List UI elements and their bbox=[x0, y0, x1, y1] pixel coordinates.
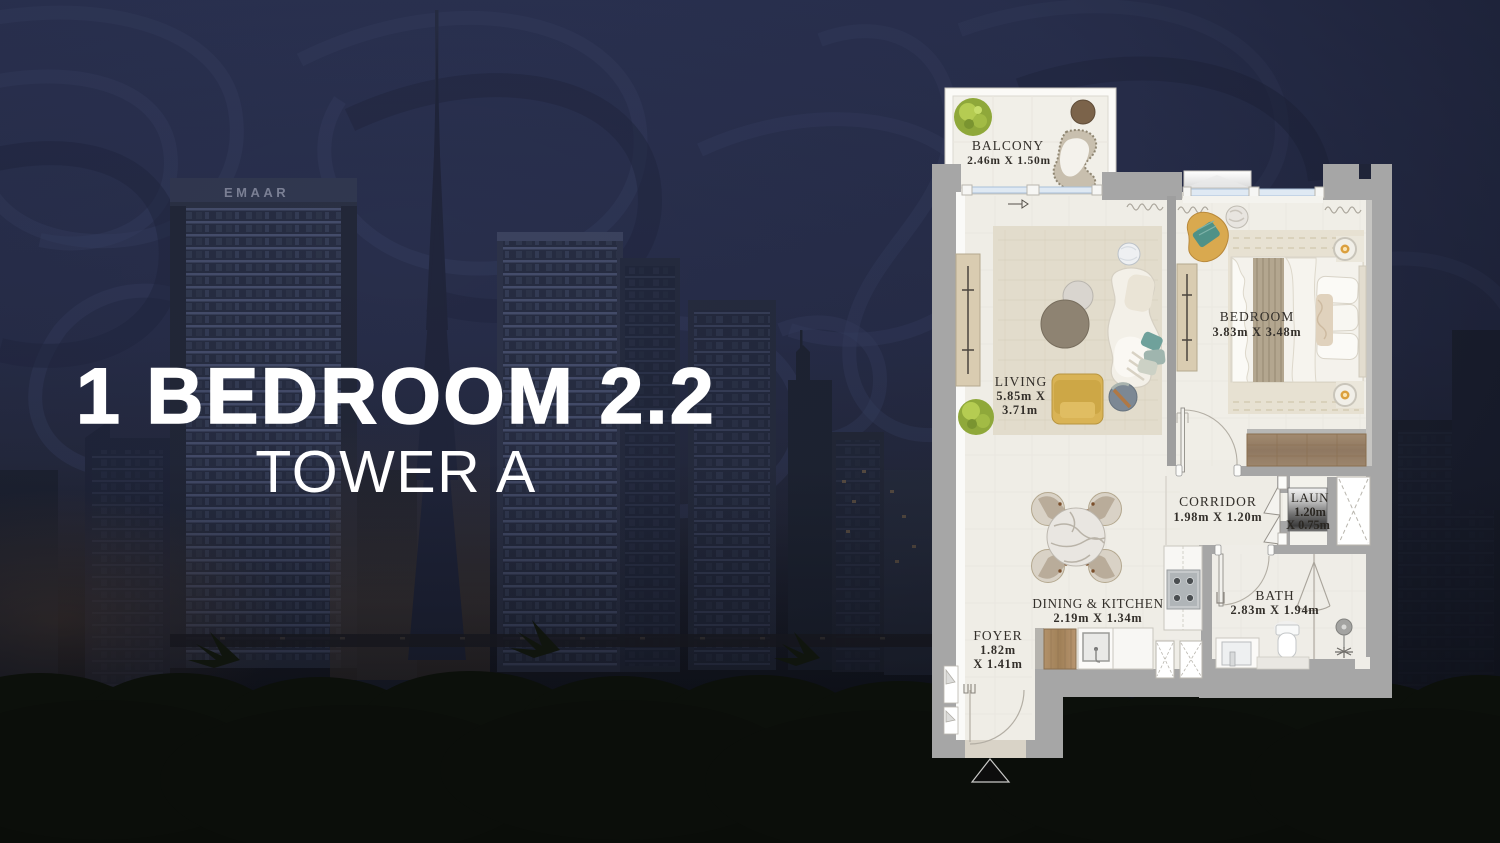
svg-text:2.83m X 1.94m: 2.83m X 1.94m bbox=[1231, 603, 1320, 617]
svg-text:X 0.75m: X 0.75m bbox=[1286, 518, 1330, 532]
svg-text:1.82m: 1.82m bbox=[980, 643, 1016, 657]
svg-text:BATH: BATH bbox=[1255, 588, 1294, 603]
svg-text:1.98m X 1.20m: 1.98m X 1.20m bbox=[1174, 510, 1263, 524]
svg-text:3.71m: 3.71m bbox=[1002, 403, 1038, 417]
svg-text:DINING & KITCHEN: DINING & KITCHEN bbox=[1032, 596, 1163, 611]
svg-text:FOYER: FOYER bbox=[973, 628, 1022, 643]
svg-text:LIVING: LIVING bbox=[995, 374, 1048, 389]
svg-text:BALCONY: BALCONY bbox=[972, 138, 1044, 153]
svg-text:1.20m: 1.20m bbox=[1294, 505, 1327, 519]
svg-text:2.19m X 1.34m: 2.19m X 1.34m bbox=[1054, 611, 1143, 625]
svg-text:2.46m X 1.50m: 2.46m X 1.50m bbox=[967, 155, 1051, 167]
svg-text:CORRIDOR: CORRIDOR bbox=[1179, 494, 1257, 509]
svg-text:LAUN: LAUN bbox=[1291, 490, 1329, 505]
svg-text:X 1.41m: X 1.41m bbox=[973, 657, 1022, 671]
svg-text:3.83m X 3.48m: 3.83m X 3.48m bbox=[1213, 325, 1302, 339]
svg-text:BEDROOM: BEDROOM bbox=[1220, 309, 1295, 324]
svg-text:5.85m X: 5.85m X bbox=[996, 389, 1045, 403]
